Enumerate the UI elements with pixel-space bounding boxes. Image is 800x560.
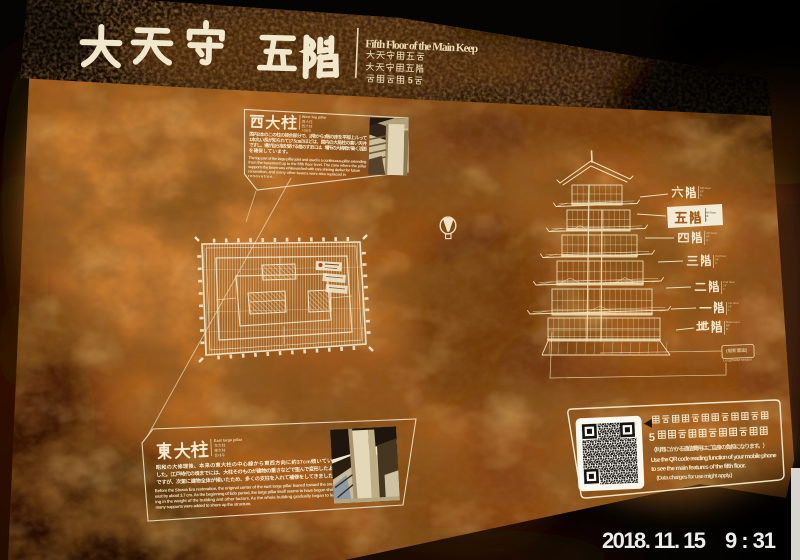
- svg-text:4:: 4:: [706, 238, 709, 242]
- svg-text:5:: 5:: [705, 217, 708, 221]
- svg-text:2018. 11. 15: 2018. 11. 15: [602, 528, 706, 553]
- svg-text:9 : 31: 9 : 31: [725, 528, 776, 553]
- svg-text:5: 5: [649, 432, 656, 444]
- svg-text:B:: B:: [726, 327, 729, 331]
- svg-text:5: 5: [408, 75, 413, 85]
- svg-text:동대주: 동대주: [214, 452, 225, 457]
- svg-text:东大柱: 东大柱: [214, 442, 226, 447]
- svg-text:東大柱: 東大柱: [214, 447, 226, 452]
- svg-text:3:: 3:: [715, 261, 718, 265]
- svg-text:1:: 1:: [728, 308, 731, 312]
- svg-text:renovation.: renovation.: [248, 173, 274, 179]
- svg-text:6:: 6:: [700, 193, 703, 197]
- svg-text:서대주: 서대주: [301, 128, 312, 133]
- svg-text:2:: 2:: [723, 287, 726, 291]
